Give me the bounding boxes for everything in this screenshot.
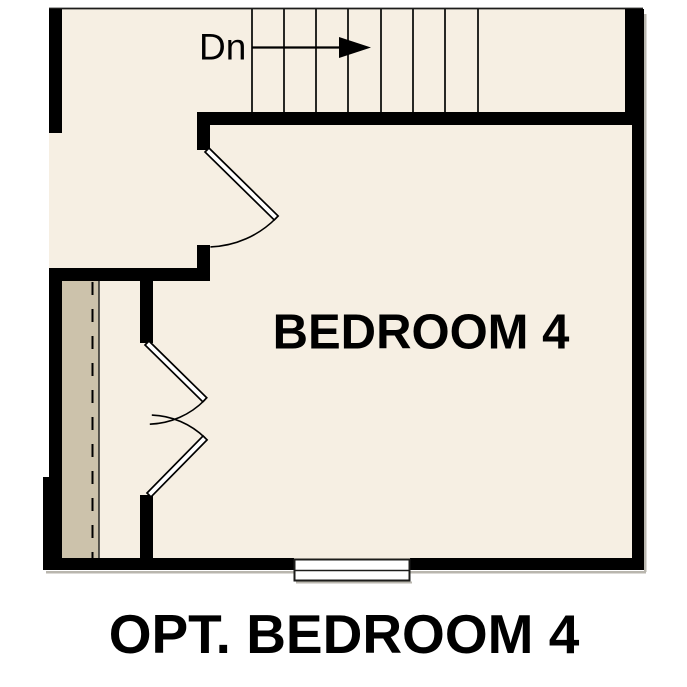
floor-plan-page: Dn BEDROOM 4 OPT. BEDROOM 4 (0, 0, 687, 687)
window-shadow (296, 582, 412, 584)
wall-segment-closet-jamb-bottom (140, 495, 153, 558)
room-label: BEDROOM 4 (273, 306, 570, 360)
plan-caption: OPT. BEDROOM 4 (109, 603, 580, 665)
wall-segment-bottom-right (410, 558, 644, 570)
wall-segment-right (632, 112, 644, 570)
wall-segment-closet-top (49, 268, 210, 281)
right-shadow (644, 14, 647, 572)
wall-segment-closet-left (49, 281, 62, 477)
wall-segment-stair (197, 112, 644, 125)
wall-segment-bottom-left (43, 558, 294, 570)
wall-segment-right-upper (625, 9, 644, 125)
wall-segment-closet-left-wide (43, 477, 62, 570)
floor-plan-canvas: Dn BEDROOM 4 OPT. BEDROOM 4 (0, 0, 687, 687)
wall-segment-entry-jamb-top (197, 112, 210, 150)
wall-segment-closet-jamb-top (140, 281, 153, 343)
floor-area (43, 9, 643, 570)
wall-segment-left-upper (49, 9, 62, 133)
stair-direction-label: Dn (199, 27, 246, 68)
